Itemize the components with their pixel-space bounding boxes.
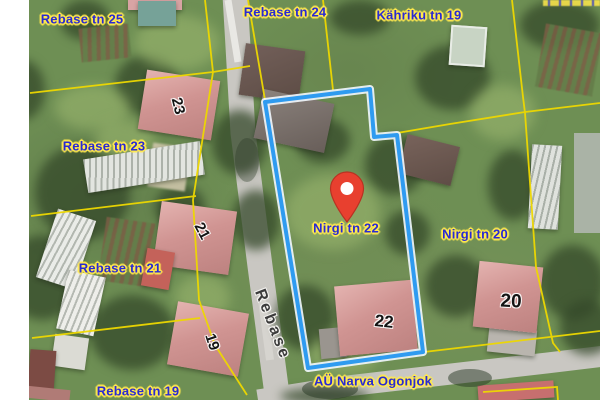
map-screenshot: Rebase tn 25 Rebase tn 24 Kähriku tn 19 …: [0, 0, 600, 400]
selected-parcel-boundary[interactable]: [265, 89, 423, 368]
location-pin-icon[interactable]: [331, 172, 364, 222]
cadastral-lines: [30, 0, 600, 400]
truncated-label-sliver: [543, 0, 600, 6]
cadastral-overlay: [0, 0, 600, 400]
page-margin: [0, 0, 29, 400]
aerial-map-canvas[interactable]: Rebase tn 25 Rebase tn 24 Kähriku tn 19 …: [0, 0, 600, 400]
